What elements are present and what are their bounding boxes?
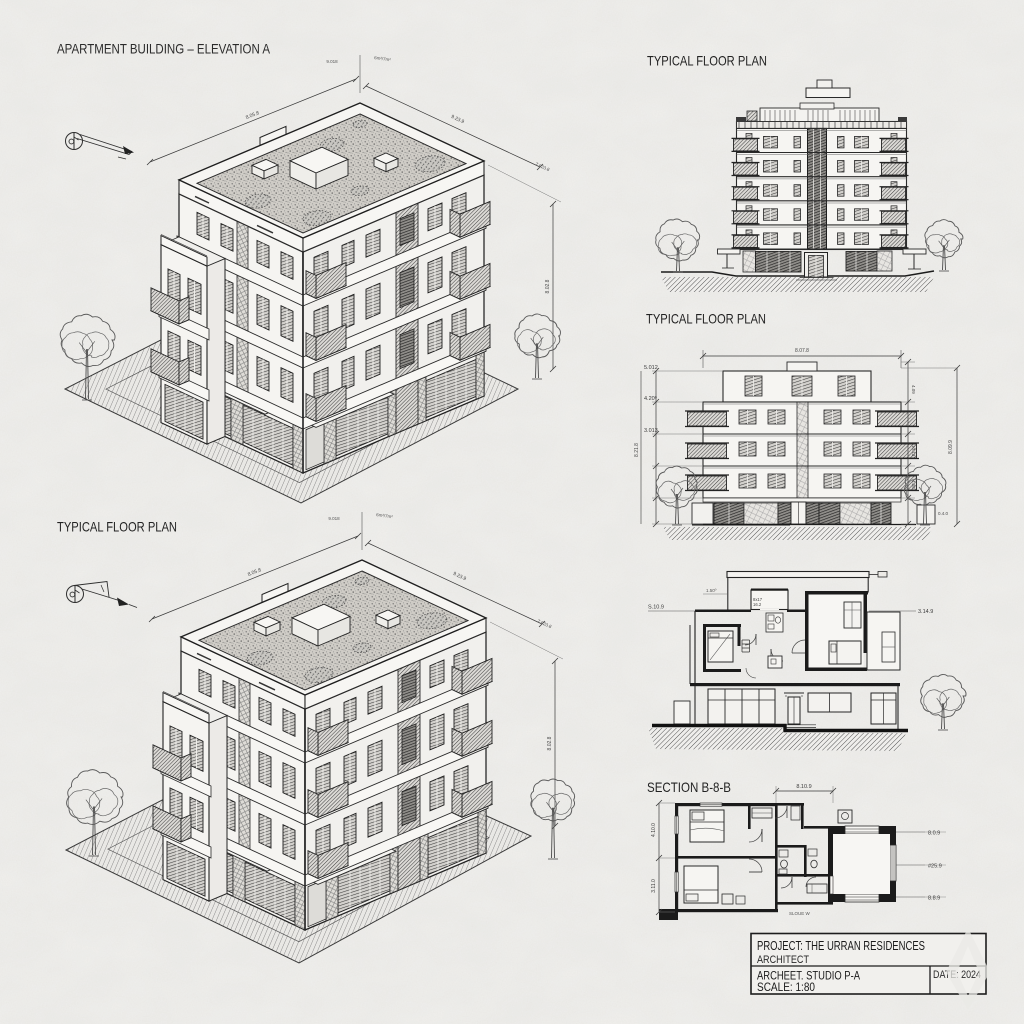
svg-text:5.012: 5.012: [644, 365, 658, 371]
svg-text:16.2: 16.2: [753, 602, 762, 607]
svg-text:10.13: 10.13: [911, 445, 916, 457]
svg-text:1.50º: 1.50º: [706, 588, 717, 593]
svg-text:8.0.9: 8.0.9: [928, 831, 940, 837]
svg-text:#25.9: #25.9: [928, 864, 942, 870]
svg-text:3.14.9: 3.14.9: [918, 609, 933, 615]
svg-text:ARCHITECT: ARCHITECT: [757, 954, 809, 966]
svg-text:9.018: 9.018: [326, 59, 338, 64]
svg-text:4.08: 4.08: [911, 480, 916, 489]
svg-text:ARCHEET. STUDIO P-A: ARCHEET. STUDIO P-A: [757, 969, 860, 983]
svg-text:8.8.9: 8.8.9: [928, 896, 940, 902]
svg-text:0.4.0: 0.4.0: [938, 511, 949, 516]
svg-text:PROJECT: THE URRAN RESIDENCES: PROJECT: THE URRAN RESIDENCES: [757, 939, 925, 953]
svg-text:SCALE: 1:80: SCALE: 1:80: [757, 982, 815, 994]
svg-text:TYPICAL FLOOR PLAN: TYPICAL FLOOR PLAN: [647, 53, 767, 69]
svg-text:SECTION B-8-B: SECTION B-8-B: [647, 779, 731, 795]
svg-text:8.09.9: 8.09.9: [948, 440, 954, 454]
svg-text:4.09: 4.09: [911, 385, 916, 394]
svg-text:SLOUE W: SLOUE W: [789, 911, 811, 916]
svg-text:TYPICAL FLOOR PLAN: TYPICAL FLOOR PLAN: [57, 519, 177, 535]
svg-text:4.20º: 4.20º: [644, 395, 657, 402]
svg-text:8.07.8: 8.07.8: [795, 348, 809, 354]
svg-text:8.10.9: 8.10.9: [796, 784, 811, 790]
svg-text:TYPICAL FLOOR PLAN: TYPICAL FLOOR PLAN: [646, 311, 766, 327]
svg-text:4.10.0: 4.10.0: [651, 823, 657, 837]
svg-text:8.02.8: 8.02.8: [545, 279, 551, 293]
svg-text:9.018: 9.018: [328, 516, 340, 521]
svg-text:3.013: 3.013: [644, 428, 658, 434]
svg-text:APARTMENT BUILDING – ELEVATION: APARTMENT BUILDING – ELEVATION A: [57, 41, 271, 57]
svg-text:8.02.8: 8.02.8: [547, 736, 553, 750]
svg-text:8.21.8: 8.21.8: [634, 443, 640, 457]
svg-text:3.11.0: 3.11.0: [651, 879, 657, 893]
svg-text:S.10.9: S.10.9: [648, 605, 664, 611]
